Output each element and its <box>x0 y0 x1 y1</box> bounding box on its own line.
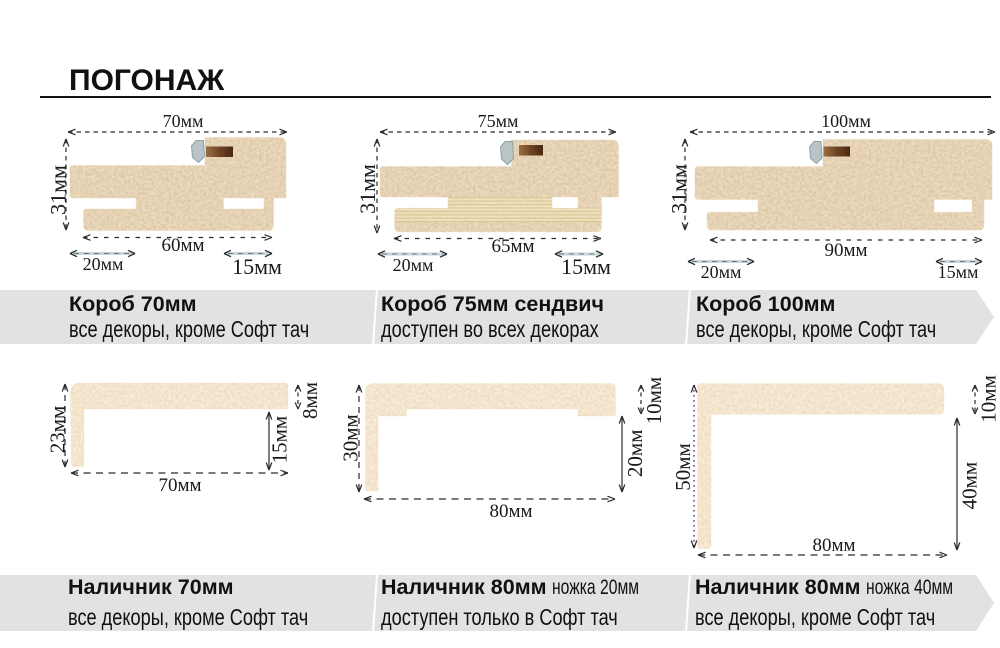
svg-text:10мм: 10мм <box>642 377 666 425</box>
svg-text:20мм: 20мм <box>701 262 742 282</box>
svg-text:90мм: 90мм <box>824 240 867 261</box>
svg-text:15мм: 15мм <box>561 254 611 279</box>
svg-text:70мм: 70мм <box>158 475 201 496</box>
svg-text:31мм: 31мм <box>355 164 380 214</box>
svg-text:40мм: 40мм <box>958 462 982 510</box>
svg-text:15мм: 15мм <box>232 254 282 279</box>
svg-text:100мм: 100мм <box>821 111 871 131</box>
svg-text:75мм: 75мм <box>478 111 519 131</box>
svg-text:31мм: 31мм <box>666 164 691 214</box>
svg-text:10мм: 10мм <box>976 375 1000 423</box>
svg-text:8мм: 8мм <box>298 382 322 419</box>
svg-text:23мм: 23мм <box>46 406 70 454</box>
svg-text:60мм: 60мм <box>161 235 204 256</box>
svg-text:80мм: 80мм <box>812 535 855 556</box>
svg-text:20мм: 20мм <box>393 255 434 275</box>
svg-text:65мм: 65мм <box>491 236 534 257</box>
svg-text:15мм: 15мм <box>938 262 979 282</box>
svg-text:70мм: 70мм <box>163 111 204 131</box>
svg-text:20мм: 20мм <box>623 430 647 478</box>
svg-text:80мм: 80мм <box>489 501 532 522</box>
svg-text:15мм: 15мм <box>267 416 291 464</box>
svg-text:20мм: 20мм <box>83 254 124 274</box>
svg-text:50мм: 50мм <box>671 443 695 491</box>
